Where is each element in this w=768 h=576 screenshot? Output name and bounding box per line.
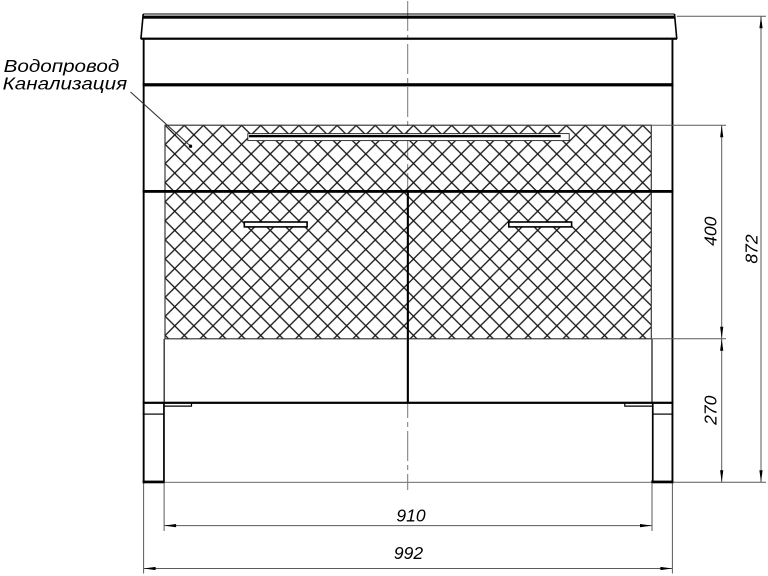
svg-text:Водопровод: Водопровод bbox=[4, 57, 120, 76]
svg-text:400: 400 bbox=[701, 216, 721, 245]
svg-text:910: 910 bbox=[396, 505, 425, 525]
svg-text:Канализация: Канализация bbox=[3, 75, 128, 94]
svg-text:992: 992 bbox=[394, 543, 423, 563]
svg-text:270: 270 bbox=[701, 395, 721, 425]
svg-text:872: 872 bbox=[742, 234, 762, 263]
